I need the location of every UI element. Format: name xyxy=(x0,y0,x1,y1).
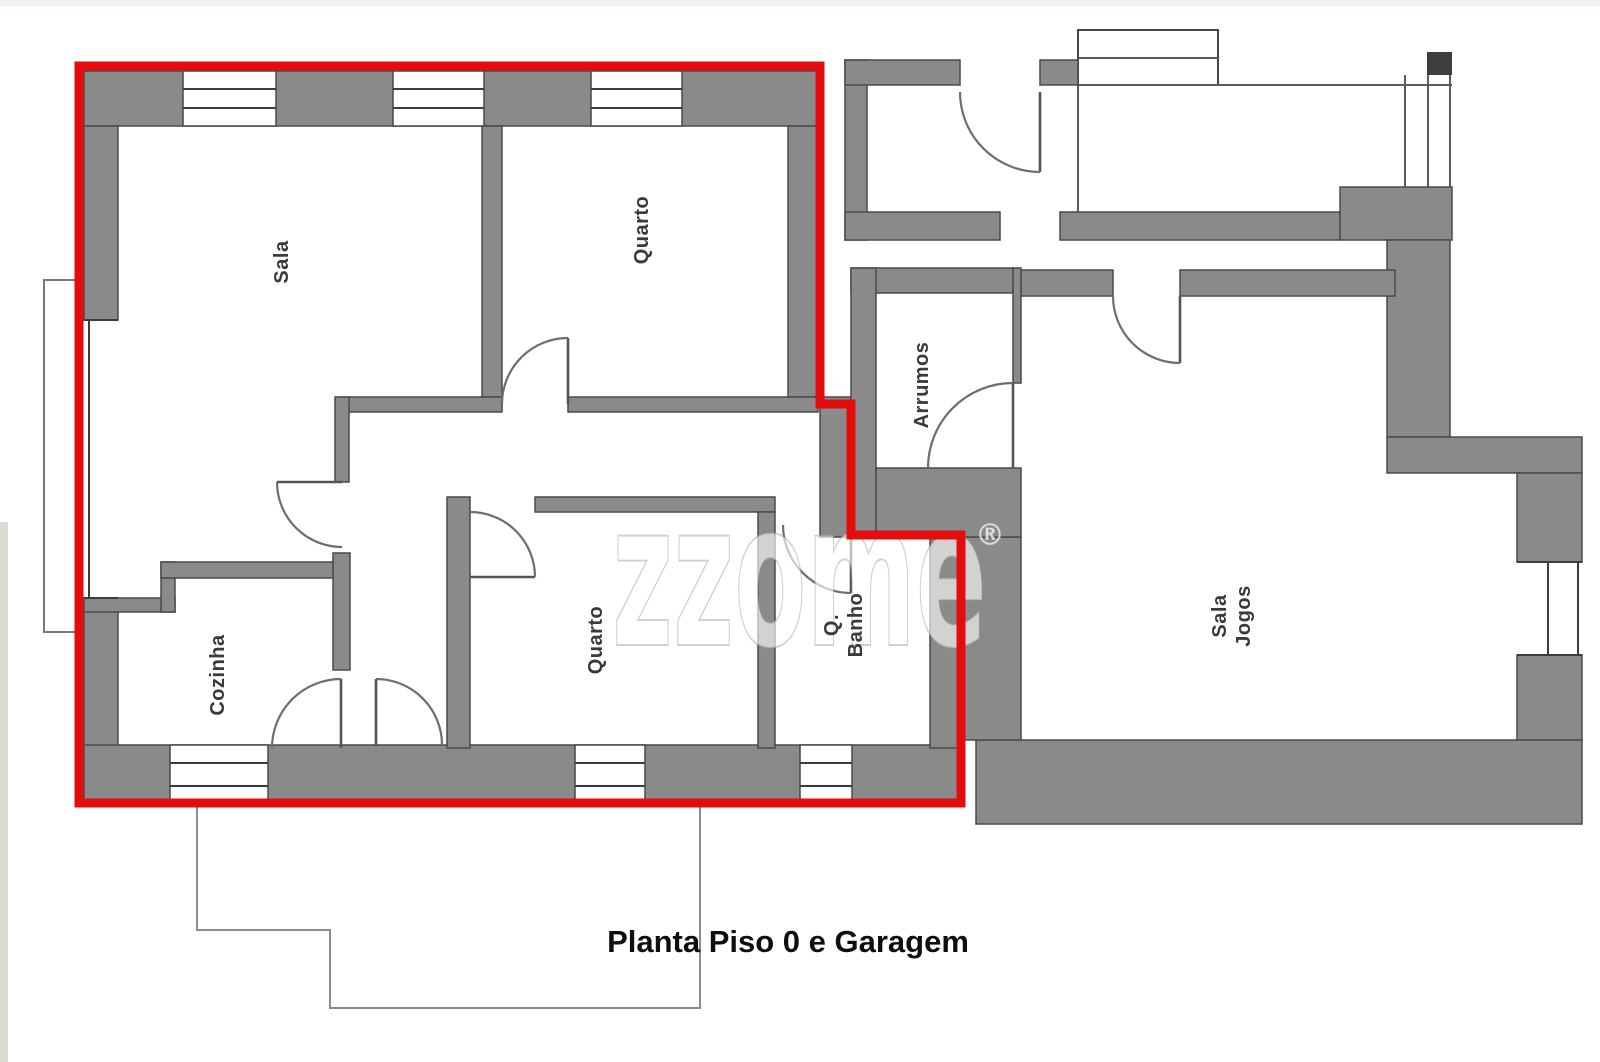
window-quarto2-bottom xyxy=(575,745,645,803)
scan-edge-top xyxy=(0,0,1600,6)
wall-hall-left xyxy=(340,397,502,412)
wall-entry-bottom-b xyxy=(1060,212,1340,240)
window-quarto-top xyxy=(591,71,682,126)
window-sala-2 xyxy=(393,71,484,126)
wall-garage-band-a xyxy=(1340,187,1452,240)
wall-jogos-top-b xyxy=(1180,270,1395,296)
wall-arrumos-right xyxy=(1013,268,1021,383)
wall-garage-bottom xyxy=(976,740,1582,824)
window-cozinha-bottom xyxy=(170,745,268,803)
label-cozinha: Cozinha xyxy=(207,634,229,716)
wall-entry-top-a xyxy=(845,60,960,85)
wall-entry-top-b xyxy=(1040,60,1078,85)
window-sala-1 xyxy=(183,71,276,126)
wall-garage-band-c xyxy=(1387,437,1582,473)
wall-jogos-right-upper xyxy=(1517,473,1582,562)
wall-jogos-right-lower xyxy=(1517,655,1582,740)
wall-garage-band-b xyxy=(1387,240,1450,437)
floor-plan-canvas: zzome ® Sala Quarto Arrumos Cozinha Quar… xyxy=(0,0,1600,1062)
wall-entry-bottom-a xyxy=(845,212,1000,240)
watermark-registered-icon: ® xyxy=(975,518,1005,553)
watermark-text: zzome xyxy=(612,460,987,693)
window-banho-bottom xyxy=(800,745,852,803)
floor-plan-page: zzome ® Sala Quarto Arrumos Cozinha Quar… xyxy=(0,0,1600,1062)
label-banho-line2: Banho xyxy=(845,593,867,658)
wall-cozinha-right xyxy=(333,553,350,670)
label-sala-jogos-line1: Sala xyxy=(1209,594,1231,638)
garage-pillar xyxy=(1427,52,1452,75)
scan-edge-left xyxy=(0,522,8,1062)
label-banho-line1: Q. xyxy=(821,614,843,636)
wall-jogos-top-a xyxy=(1021,270,1113,296)
wall-cozinha-top-high xyxy=(161,562,333,578)
plan-caption: Planta Piso 0 e Garagem xyxy=(607,924,969,959)
label-quarto-bottom: Quarto xyxy=(585,606,607,675)
label-arrumos: Arrumos xyxy=(911,342,933,429)
label-quarto-top: Quarto xyxy=(631,196,653,265)
wall-left-upper xyxy=(84,126,118,320)
label-sala-jogos-line2: Jogos xyxy=(1233,585,1255,646)
wall-sala-quarto-divider xyxy=(482,126,502,397)
label-sala: Sala xyxy=(271,240,293,284)
watermark: zzome ® xyxy=(612,460,1005,693)
wall-quarto-top-bottom xyxy=(568,397,818,412)
wall-quarto2-left xyxy=(447,497,470,748)
wall-hall-stub xyxy=(335,397,349,482)
wall-apartment-right xyxy=(788,126,818,397)
